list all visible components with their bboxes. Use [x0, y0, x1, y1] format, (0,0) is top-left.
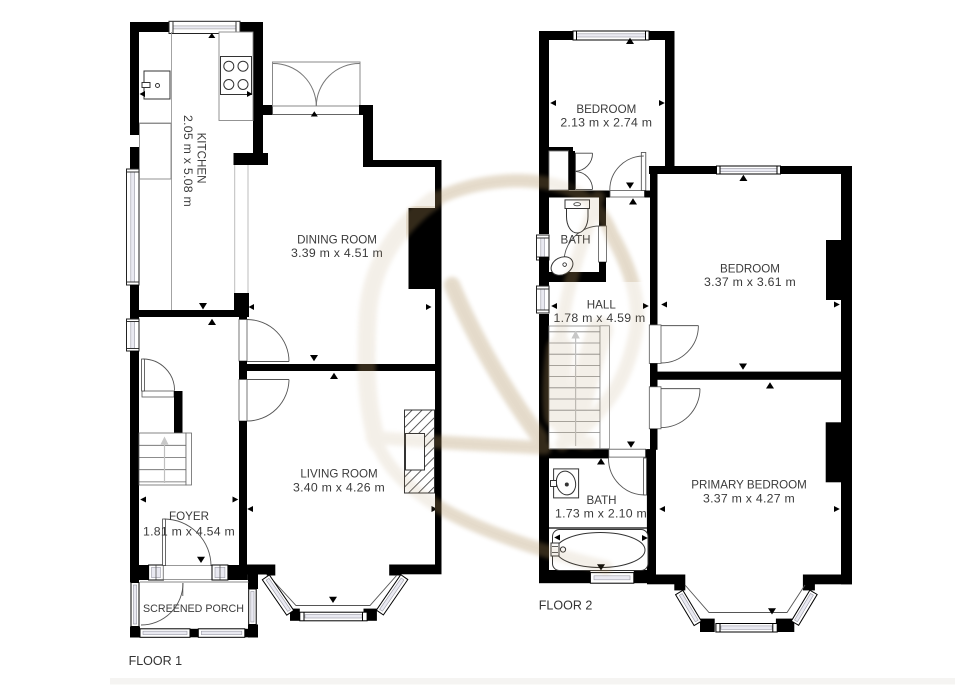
svg-text:FLOOR 2: FLOOR 2 [539, 599, 593, 613]
svg-text:DINING ROOM: DINING ROOM [297, 234, 377, 247]
svg-text:HALL: HALL [587, 299, 617, 312]
svg-text:LIVING ROOM: LIVING ROOM [300, 468, 377, 481]
svg-text:2.05 m x 5.08 m: 2.05 m x 5.08 m [181, 115, 195, 207]
svg-text:3.37 m x 4.27 m: 3.37 m x 4.27 m [703, 492, 795, 506]
svg-text:1.81 m x 4.54 m: 1.81 m x 4.54 m [143, 525, 235, 539]
svg-text:PRIMARY BEDROOM: PRIMARY BEDROOM [691, 479, 807, 492]
svg-text:KITCHEN: KITCHEN [195, 133, 208, 184]
svg-text:BEDROOM: BEDROOM [720, 263, 780, 276]
svg-text:3.37 m x 3.61 m: 3.37 m x 3.61 m [704, 275, 796, 289]
svg-text:FOYER: FOYER [169, 510, 209, 523]
svg-text:3.39 m x 4.51 m: 3.39 m x 4.51 m [291, 246, 383, 260]
svg-text:1.73 m x 2.10 m: 1.73 m x 2.10 m [555, 507, 647, 521]
svg-text:BATH: BATH [586, 494, 616, 507]
svg-text:BEDROOM: BEDROOM [576, 103, 636, 116]
svg-text:2.13 m x 2.74 m: 2.13 m x 2.74 m [560, 116, 652, 130]
svg-text:FLOOR 1: FLOOR 1 [129, 654, 183, 668]
svg-text:3.40 m x 4.26 m: 3.40 m x 4.26 m [293, 481, 385, 495]
svg-text:SCREENED PORCH: SCREENED PORCH [143, 603, 244, 615]
